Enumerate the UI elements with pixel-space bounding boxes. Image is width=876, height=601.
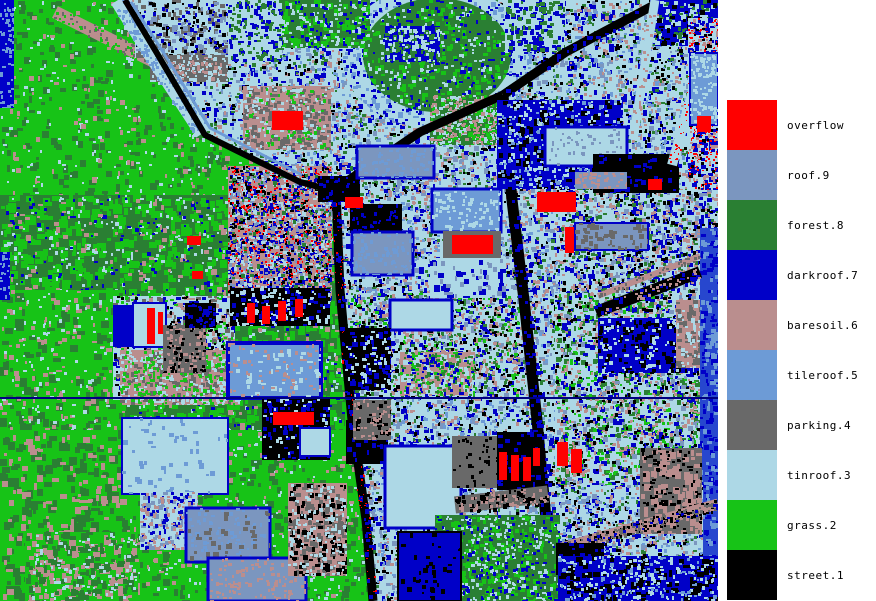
legend-color-swatch xyxy=(727,200,777,250)
legend-item: tileroof.5 xyxy=(727,350,876,400)
legend-color-swatch xyxy=(727,350,777,400)
legend-item: overflow xyxy=(727,100,876,150)
classification-figure: overflowroof.9forest.8darkroof.7baresoil… xyxy=(0,0,876,601)
legend-color-swatch xyxy=(727,250,777,300)
legend-item: darkroof.7 xyxy=(727,250,876,300)
legend-item: baresoil.6 xyxy=(727,300,876,350)
legend-label: street.1 xyxy=(787,569,844,582)
legend: overflowroof.9forest.8darkroof.7baresoil… xyxy=(727,100,876,600)
legend-label: overflow xyxy=(787,119,844,132)
legend-label: darkroof.7 xyxy=(787,269,858,282)
legend-label: tileroof.5 xyxy=(787,369,858,382)
legend-label: baresoil.6 xyxy=(787,319,858,332)
legend-item: roof.9 xyxy=(727,150,876,200)
legend-color-swatch xyxy=(727,500,777,550)
legend-color-swatch xyxy=(727,550,777,600)
legend-item: parking.4 xyxy=(727,400,876,450)
legend-item: forest.8 xyxy=(727,200,876,250)
legend-item: grass.2 xyxy=(727,500,876,550)
legend-color-swatch xyxy=(727,100,777,150)
classification-map xyxy=(0,0,718,601)
legend-label: roof.9 xyxy=(787,169,830,182)
classification-map-canvas xyxy=(0,0,718,601)
legend-color-swatch xyxy=(727,450,777,500)
legend-label: grass.2 xyxy=(787,519,837,532)
legend-color-swatch xyxy=(727,150,777,200)
legend-label: tinroof.3 xyxy=(787,469,851,482)
legend-label: forest.8 xyxy=(787,219,844,232)
legend-item: tinroof.3 xyxy=(727,450,876,500)
legend-item: street.1 xyxy=(727,550,876,600)
legend-color-swatch xyxy=(727,300,777,350)
legend-color-swatch xyxy=(727,400,777,450)
legend-label: parking.4 xyxy=(787,419,851,432)
